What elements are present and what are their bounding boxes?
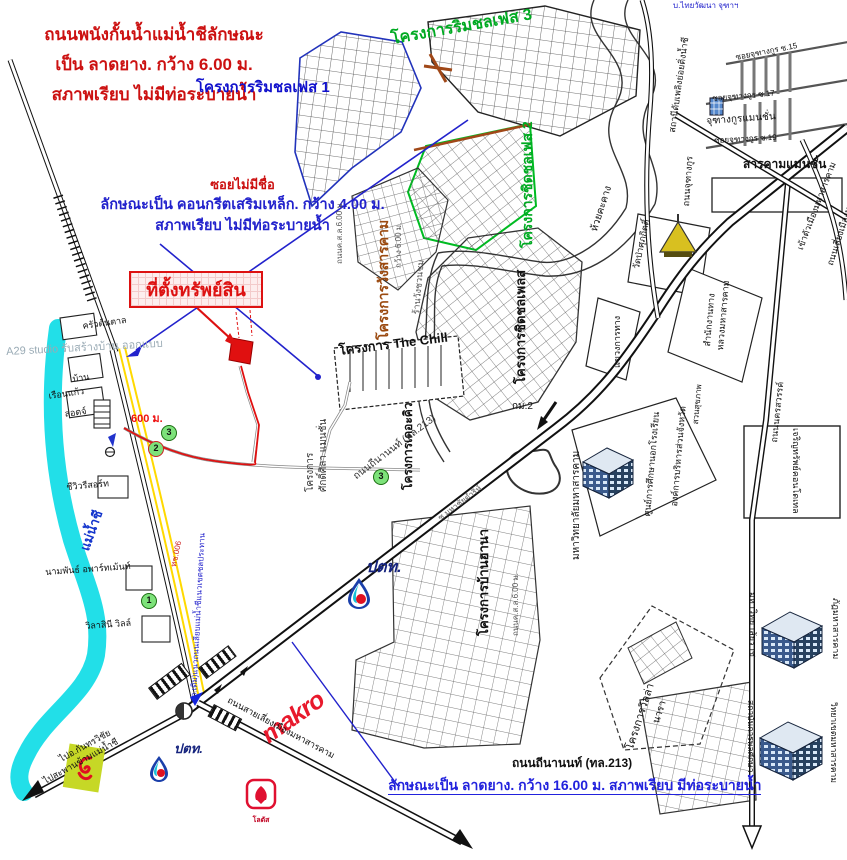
thaiwat-company: บ.ไทยวัฒนา จุฑาฯ (673, 2, 739, 10)
project-chidchon-place: โครงการชิดชลเพลส (514, 270, 528, 384)
property-label: ที่ตั้งทรัพย์สิน (146, 275, 246, 304)
road-csl-6m-north: ถนนค.ส.ล.6.00 ม. (336, 201, 344, 264)
lotus-logo: โลตัส (241, 778, 281, 826)
distance-600m-label: 600 ม. (131, 414, 163, 426)
project-rimchon-phase1: โครงการริมชลเฟส 1 (196, 80, 330, 96)
lotus-caption: โลตัส (241, 815, 281, 826)
soi-annotation: ซอยไม่มีชื่อ ลักษณะเป็น คอนกรีตเสริมเหล็… (70, 174, 415, 237)
appraisal-location-map: ถนนพนังกั้นน้ำแม่น้ำชีลักษณะ เป็น ลาดยาง… (0, 0, 847, 860)
project-chidchon-phase2: โครงการชิดชลเฟส 2 (520, 121, 535, 248)
inst-physical-edu-2: วิทยาเขตมหาสารคาม (829, 702, 838, 783)
highway-name-label: ถนนถีนานนท์ (ทล.213) (512, 757, 632, 770)
property-location-box: ที่ตั้งทรัพย์สิน (129, 271, 263, 308)
charoensap-condotel: เจริญทรัพย์คอนโดเทล (791, 428, 800, 514)
ptt-label-small: ปตท. (174, 742, 203, 756)
highway-description: ลักษณะเป็น ลาดยาง. กว้าง 16.00 ม. สภาพเร… (388, 778, 761, 795)
levee-line1: ถนนพนังกั้นน้ำแม่น้ำชีลักษณะ (8, 20, 300, 50)
soi-title: ซอยไม่มีชื่อ (70, 174, 415, 195)
soi-line2: สภาพเรียบ ไม่มีท่อระบายน้ำ (70, 216, 415, 237)
road-csl-6m-south: ถนนค.ส.ล.6.00 ม. (512, 573, 520, 636)
physical-edu-building-icon (760, 722, 822, 780)
distance-marker-1: 1 (141, 593, 157, 609)
khwaeng-kan-thang: แขวงการทาง (613, 316, 622, 368)
rajabhat-university-1: มหาวิทยาลัยราช (748, 592, 757, 657)
ptt-label: ปตท. (366, 560, 402, 577)
soi-line1: ลักษณะเป็น คอนกรีตเสริมเหล็ก. กว้าง 4.00… (70, 195, 415, 216)
ptt-drop-icon-small (148, 754, 170, 784)
msu-university: มหาวิทยาลัยมหาสารคาม (572, 451, 583, 560)
saksila-mansion: ศักดิ์ศิลา แมนชั่น (319, 419, 330, 492)
lotus-icon (245, 778, 277, 810)
rajabhat-building-icon (762, 612, 822, 668)
road-width-6m: กว้าง 6.00 ม. (395, 223, 403, 268)
distance-marker-2: 2 (148, 441, 164, 457)
distance-marker-3: 3 (373, 469, 389, 485)
rajabhat-university-2: ภัฏมหาสารคาม (831, 598, 840, 659)
distance-marker-3: 3 (161, 425, 177, 441)
ptt-drop-icon (346, 576, 372, 610)
project-label: โครงการ (306, 453, 317, 492)
km2-label: กม.2 (512, 402, 533, 413)
inst-physical-edu-1: สถาบันการพลศึกษา (746, 700, 755, 773)
sarakham-mansion: สารคามแมนชั่น (743, 158, 826, 171)
levee-line2: เป็น ลาดยาง. กว้าง 6.00 ม. (8, 50, 300, 80)
project-wangsarakham: โครงการวังสารคาม (376, 220, 391, 340)
project-baan-hana: โครงการบ้านฮานา (477, 529, 491, 636)
